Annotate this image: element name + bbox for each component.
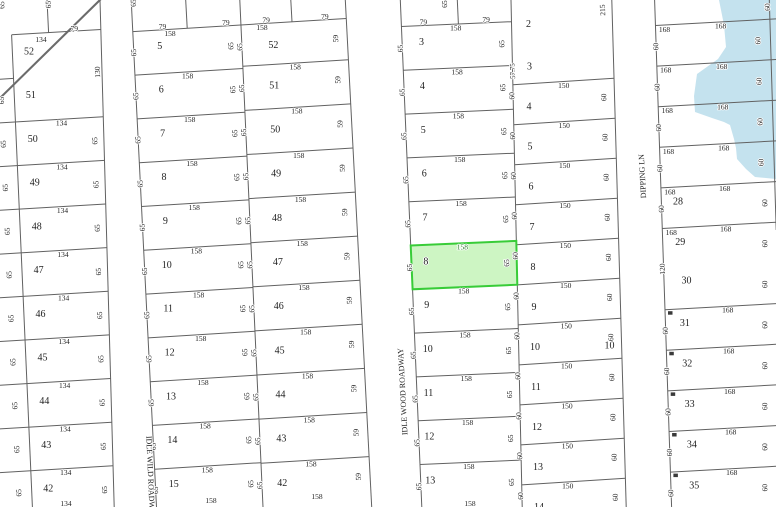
- svg-text:12: 12: [532, 422, 542, 433]
- svg-text:13: 13: [166, 391, 176, 402]
- svg-text:48: 48: [32, 221, 42, 232]
- svg-text:65: 65: [396, 44, 405, 52]
- svg-text:60: 60: [662, 367, 671, 375]
- svg-text:46: 46: [274, 301, 284, 312]
- svg-text:168: 168: [716, 62, 728, 71]
- svg-text:65: 65: [10, 402, 19, 410]
- svg-text:79: 79: [321, 12, 329, 21]
- svg-text:158: 158: [205, 496, 217, 505]
- svg-text:60: 60: [655, 164, 664, 172]
- svg-text:45: 45: [275, 345, 285, 356]
- svg-text:60: 60: [608, 413, 617, 421]
- svg-text:134: 134: [59, 381, 71, 390]
- svg-text:130: 130: [93, 66, 102, 78]
- svg-text:65: 65: [230, 129, 239, 137]
- svg-text:158: 158: [297, 239, 309, 248]
- svg-text:60: 60: [600, 133, 609, 141]
- svg-text:168: 168: [723, 346, 735, 355]
- svg-text:65: 65: [253, 437, 262, 445]
- svg-text:59: 59: [333, 76, 342, 84]
- svg-text:60: 60: [651, 42, 660, 50]
- svg-text:65: 65: [133, 136, 142, 144]
- svg-text:60: 60: [510, 212, 519, 220]
- svg-text:65: 65: [242, 392, 251, 400]
- svg-text:60: 60: [601, 173, 610, 181]
- svg-text:12: 12: [424, 432, 434, 443]
- svg-text:65: 65: [502, 259, 511, 267]
- svg-text:120: 120: [658, 263, 667, 275]
- svg-text:79: 79: [222, 18, 230, 27]
- svg-text:150: 150: [561, 321, 573, 330]
- svg-text:42: 42: [277, 478, 287, 489]
- svg-text:65: 65: [399, 132, 408, 140]
- svg-text:134: 134: [59, 425, 71, 434]
- svg-text:60: 60: [607, 373, 616, 381]
- svg-text:12: 12: [165, 348, 175, 359]
- svg-text:150: 150: [562, 441, 574, 450]
- svg-text:168: 168: [659, 25, 671, 34]
- svg-text:158: 158: [295, 195, 307, 204]
- svg-text:60: 60: [511, 292, 520, 300]
- svg-text:65: 65: [144, 355, 153, 363]
- svg-text:60: 60: [763, 3, 772, 11]
- svg-text:158: 158: [290, 63, 302, 72]
- svg-text:150: 150: [558, 81, 570, 90]
- svg-text:60: 60: [515, 452, 524, 460]
- svg-text:65: 65: [6, 314, 15, 322]
- svg-text:150: 150: [561, 401, 573, 410]
- svg-text:59: 59: [354, 473, 363, 481]
- svg-text:60: 60: [516, 492, 525, 500]
- svg-text:65: 65: [414, 482, 423, 490]
- svg-text:65: 65: [0, 1, 6, 9]
- svg-text:60: 60: [657, 205, 666, 213]
- svg-text:3: 3: [527, 62, 532, 73]
- svg-text:60: 60: [760, 240, 769, 248]
- svg-text:158: 158: [184, 115, 196, 124]
- svg-text:65: 65: [247, 305, 256, 313]
- svg-text:9: 9: [424, 300, 429, 311]
- svg-text:65: 65: [245, 261, 254, 269]
- svg-text:158: 158: [450, 24, 462, 33]
- svg-text:59: 59: [347, 340, 356, 348]
- svg-text:158: 158: [291, 107, 303, 116]
- svg-text:65: 65: [140, 267, 149, 275]
- svg-text:65: 65: [243, 217, 252, 225]
- svg-text:65: 65: [236, 261, 245, 269]
- svg-text:60: 60: [755, 118, 764, 126]
- svg-text:60: 60: [606, 333, 615, 341]
- svg-text:65: 65: [138, 223, 147, 231]
- svg-text:65: 65: [90, 137, 99, 145]
- svg-text:10: 10: [162, 260, 172, 271]
- svg-text:9: 9: [532, 302, 537, 313]
- svg-text:65: 65: [498, 83, 507, 91]
- svg-text:50: 50: [28, 134, 38, 145]
- svg-text:14: 14: [534, 502, 544, 507]
- svg-text:60: 60: [760, 484, 769, 492]
- svg-text:134: 134: [56, 119, 68, 128]
- svg-text:65: 65: [440, 0, 449, 8]
- svg-text:158: 158: [195, 334, 207, 343]
- svg-text:65: 65: [8, 358, 17, 366]
- svg-text:168: 168: [719, 184, 731, 193]
- svg-text:60: 60: [663, 408, 672, 416]
- svg-text:8: 8: [423, 256, 428, 267]
- svg-text:60: 60: [654, 124, 663, 132]
- svg-text:158: 158: [298, 283, 310, 292]
- svg-text:65: 65: [249, 349, 258, 357]
- svg-text:51: 51: [26, 90, 36, 101]
- svg-text:57.75: 57.75: [509, 63, 518, 80]
- svg-text:65: 65: [226, 42, 235, 50]
- svg-text:134: 134: [56, 162, 68, 171]
- svg-text:65: 65: [405, 263, 414, 271]
- svg-text:45: 45: [38, 353, 48, 364]
- svg-text:65: 65: [238, 304, 247, 312]
- svg-text:168: 168: [664, 187, 676, 196]
- svg-text:158: 158: [186, 159, 198, 168]
- svg-text:47: 47: [273, 257, 283, 268]
- svg-text:134: 134: [58, 337, 70, 346]
- svg-text:215: 215: [598, 4, 607, 16]
- svg-text:65: 65: [96, 355, 105, 363]
- svg-text:168: 168: [726, 468, 738, 477]
- svg-text:65: 65: [129, 49, 138, 57]
- svg-text:158: 158: [463, 462, 475, 471]
- svg-text:65: 65: [228, 85, 237, 93]
- svg-text:60: 60: [652, 83, 661, 91]
- svg-text:65: 65: [412, 439, 421, 447]
- svg-text:5: 5: [421, 125, 426, 136]
- svg-text:8: 8: [531, 262, 536, 273]
- svg-text:5: 5: [528, 142, 533, 153]
- svg-text:158: 158: [457, 243, 469, 252]
- svg-text:134: 134: [60, 499, 72, 507]
- svg-text:60: 60: [760, 402, 769, 410]
- svg-text:60: 60: [511, 252, 520, 260]
- svg-text:7: 7: [423, 213, 428, 224]
- svg-text:2: 2: [526, 19, 531, 30]
- svg-text:79: 79: [420, 18, 428, 27]
- svg-text:65: 65: [91, 180, 100, 188]
- svg-text:6: 6: [422, 169, 427, 180]
- svg-text:65: 65: [100, 486, 109, 494]
- svg-text:65: 65: [234, 217, 243, 225]
- svg-text:65: 65: [241, 172, 250, 180]
- svg-text:150: 150: [560, 241, 572, 250]
- svg-text:65: 65: [505, 390, 514, 398]
- svg-text:60: 60: [760, 280, 769, 288]
- svg-text:65: 65: [14, 489, 23, 497]
- svg-text:33: 33: [685, 399, 695, 410]
- svg-text:29: 29: [675, 237, 685, 248]
- svg-text:79: 79: [482, 15, 490, 24]
- svg-text:134: 134: [35, 35, 47, 44]
- svg-text:14: 14: [167, 435, 177, 446]
- svg-text:65: 65: [407, 307, 416, 315]
- svg-text:11: 11: [163, 304, 173, 315]
- svg-text:59: 59: [351, 428, 360, 436]
- svg-text:60: 60: [760, 362, 769, 370]
- svg-text:6: 6: [529, 182, 534, 193]
- svg-text:158: 158: [202, 466, 214, 475]
- svg-text:65: 65: [93, 224, 102, 232]
- svg-text:60: 60: [753, 37, 762, 45]
- svg-text:60: 60: [508, 132, 517, 140]
- svg-text:158: 158: [455, 199, 467, 208]
- svg-text:134: 134: [57, 250, 69, 259]
- svg-text:168: 168: [660, 66, 672, 75]
- svg-text:13: 13: [425, 476, 435, 487]
- svg-text:50: 50: [270, 125, 280, 136]
- svg-text:65: 65: [397, 88, 406, 96]
- svg-text:158: 158: [461, 374, 473, 383]
- svg-text:65: 65: [410, 395, 419, 403]
- svg-text:158: 158: [256, 23, 268, 32]
- svg-text:158: 158: [300, 327, 312, 336]
- svg-text:60: 60: [603, 213, 612, 221]
- svg-text:7: 7: [160, 128, 165, 139]
- svg-text:65: 65: [507, 478, 516, 486]
- svg-text:59: 59: [349, 384, 358, 392]
- svg-text:49: 49: [30, 178, 40, 189]
- svg-text:168: 168: [724, 387, 736, 396]
- svg-text:158: 158: [453, 111, 465, 120]
- svg-text:168: 168: [722, 306, 734, 315]
- svg-text:158: 158: [304, 416, 316, 425]
- svg-text:60: 60: [661, 327, 670, 335]
- svg-text:79: 79: [70, 24, 78, 33]
- svg-text:65: 65: [401, 176, 410, 184]
- svg-text:6: 6: [159, 85, 164, 96]
- svg-text:158: 158: [191, 247, 203, 256]
- svg-text:59: 59: [335, 120, 344, 128]
- svg-text:65: 65: [506, 434, 515, 442]
- svg-text:60: 60: [512, 332, 521, 340]
- svg-text:168: 168: [718, 143, 730, 152]
- svg-text:65: 65: [409, 351, 418, 359]
- svg-text:60: 60: [756, 158, 765, 166]
- svg-text:59: 59: [345, 296, 354, 304]
- svg-text:158: 158: [464, 499, 476, 507]
- svg-text:65: 65: [237, 84, 246, 92]
- svg-text:65: 65: [235, 43, 244, 51]
- svg-text:65: 65: [232, 173, 241, 181]
- svg-text:134: 134: [57, 206, 69, 215]
- svg-text:168: 168: [717, 103, 729, 112]
- svg-text:65: 65: [94, 268, 103, 276]
- svg-text:60: 60: [760, 443, 769, 451]
- svg-text:150: 150: [561, 361, 573, 370]
- svg-text:65: 65: [0, 140, 8, 148]
- svg-text:11: 11: [531, 382, 541, 393]
- svg-text:150: 150: [559, 121, 571, 130]
- svg-text:59: 59: [331, 34, 340, 42]
- svg-text:52: 52: [268, 40, 278, 51]
- svg-text:158: 158: [199, 422, 211, 431]
- svg-text:65: 65: [0, 96, 6, 104]
- svg-text:158: 158: [189, 203, 201, 212]
- svg-text:3: 3: [419, 37, 424, 48]
- svg-text:13: 13: [533, 462, 543, 473]
- svg-text:150: 150: [559, 161, 571, 170]
- svg-text:10: 10: [423, 344, 433, 355]
- svg-text:65: 65: [240, 348, 249, 356]
- svg-text:35: 35: [689, 480, 699, 491]
- svg-text:65: 65: [255, 481, 264, 489]
- svg-text:65: 65: [239, 128, 248, 136]
- svg-text:65: 65: [251, 393, 260, 401]
- svg-text:158: 158: [164, 29, 176, 38]
- svg-text:65: 65: [497, 40, 506, 48]
- svg-text:4: 4: [420, 81, 425, 92]
- svg-text:43: 43: [276, 434, 286, 445]
- svg-text:9: 9: [163, 216, 168, 227]
- svg-text:60: 60: [604, 253, 613, 261]
- svg-text:60: 60: [514, 412, 523, 420]
- svg-text:65: 65: [142, 311, 151, 319]
- svg-text:65: 65: [4, 271, 13, 279]
- svg-text:5: 5: [157, 41, 162, 52]
- svg-text:10: 10: [530, 342, 540, 353]
- svg-text:158: 158: [197, 378, 209, 387]
- svg-text:158: 158: [459, 330, 471, 339]
- svg-text:60: 60: [611, 493, 620, 501]
- svg-text:15: 15: [169, 479, 179, 490]
- svg-text:51: 51: [269, 80, 279, 91]
- svg-text:158: 158: [458, 287, 470, 296]
- svg-text:34: 34: [687, 440, 697, 451]
- svg-text:65: 65: [246, 480, 255, 488]
- svg-text:31: 31: [680, 318, 690, 329]
- svg-text:60: 60: [665, 448, 674, 456]
- svg-text:168: 168: [666, 228, 678, 237]
- svg-text:60: 60: [513, 372, 522, 380]
- svg-text:4: 4: [527, 102, 532, 113]
- svg-text:158: 158: [182, 71, 194, 80]
- svg-text:60: 60: [507, 92, 516, 100]
- svg-text:44: 44: [39, 396, 49, 407]
- svg-text:65: 65: [97, 398, 106, 406]
- svg-text:60: 60: [509, 172, 518, 180]
- svg-text:65: 65: [95, 311, 104, 319]
- svg-text:158: 158: [305, 460, 317, 469]
- svg-text:168: 168: [720, 225, 732, 234]
- svg-text:60: 60: [760, 321, 769, 329]
- svg-text:52: 52: [24, 47, 34, 58]
- svg-text:158: 158: [451, 67, 463, 76]
- svg-text:134: 134: [58, 293, 70, 302]
- svg-text:42: 42: [43, 484, 53, 495]
- svg-text:65: 65: [244, 436, 253, 444]
- svg-text:60: 60: [754, 77, 763, 85]
- svg-text:150: 150: [560, 281, 572, 290]
- svg-text:65: 65: [1, 184, 10, 192]
- svg-text:60: 60: [760, 199, 769, 207]
- svg-text:150: 150: [559, 201, 571, 210]
- svg-text:65: 65: [135, 180, 144, 188]
- svg-text:60: 60: [605, 293, 614, 301]
- svg-text:59: 59: [338, 164, 347, 172]
- svg-text:158: 158: [302, 371, 314, 380]
- svg-text:8: 8: [162, 172, 167, 183]
- svg-text:65: 65: [504, 346, 513, 354]
- svg-text:48: 48: [272, 213, 282, 224]
- svg-text:60: 60: [666, 489, 675, 497]
- svg-text:43: 43: [41, 440, 51, 451]
- svg-text:65: 65: [131, 92, 140, 100]
- svg-text:65: 65: [3, 227, 12, 235]
- svg-text:158: 158: [311, 492, 323, 501]
- svg-text:158: 158: [462, 418, 474, 427]
- svg-text:44: 44: [276, 390, 286, 401]
- svg-text:168: 168: [663, 147, 675, 156]
- svg-text:158: 158: [293, 151, 305, 160]
- svg-text:158: 158: [193, 290, 205, 299]
- svg-text:59: 59: [342, 252, 351, 260]
- svg-text:32: 32: [682, 359, 692, 370]
- svg-text:28: 28: [673, 197, 683, 208]
- svg-text:65: 65: [99, 442, 108, 450]
- svg-text:30: 30: [682, 276, 692, 287]
- svg-text:65: 65: [503, 303, 512, 311]
- svg-text:65: 65: [403, 220, 412, 228]
- svg-text:65: 65: [499, 127, 508, 135]
- svg-text:158: 158: [454, 155, 466, 164]
- svg-text:168: 168: [725, 428, 737, 437]
- svg-text:60: 60: [609, 453, 618, 461]
- svg-text:47: 47: [34, 265, 44, 276]
- svg-text:134: 134: [60, 468, 72, 477]
- svg-text:65: 65: [146, 399, 155, 407]
- svg-text:65: 65: [12, 445, 21, 453]
- svg-text:168: 168: [662, 106, 674, 115]
- svg-text:65: 65: [129, 0, 138, 7]
- svg-text:59: 59: [340, 208, 349, 216]
- svg-text:49: 49: [271, 169, 281, 180]
- svg-text:11: 11: [424, 388, 434, 399]
- svg-text:46: 46: [36, 309, 46, 320]
- svg-text:7: 7: [530, 222, 535, 233]
- svg-text:150: 150: [562, 481, 574, 490]
- svg-text:60: 60: [599, 93, 608, 101]
- svg-text:168: 168: [715, 21, 727, 30]
- svg-text:65: 65: [44, 0, 53, 8]
